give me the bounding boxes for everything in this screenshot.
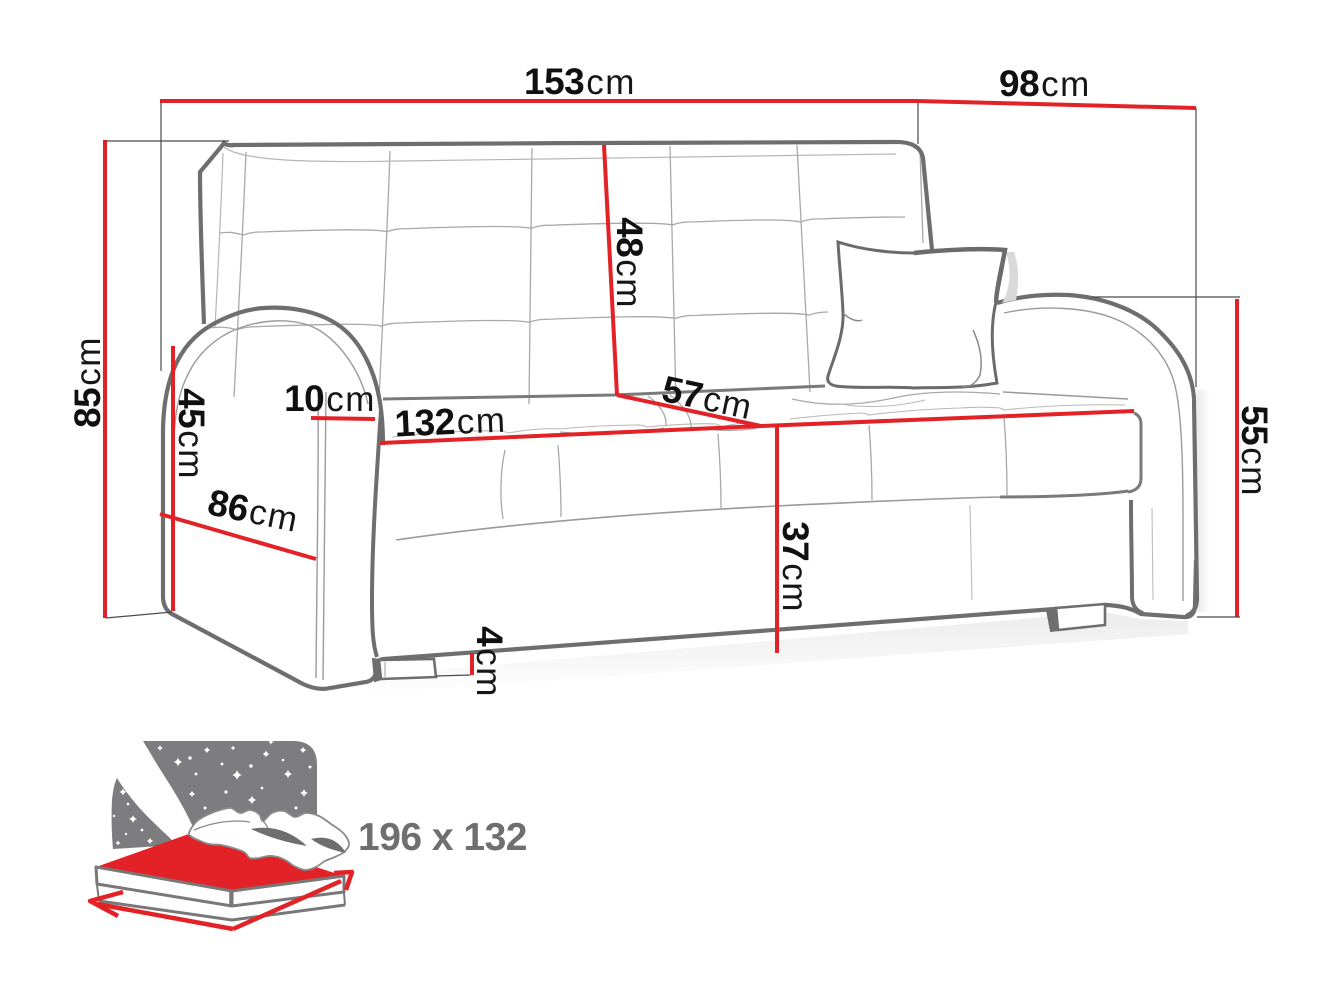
svg-text:98cm: 98cm: [999, 63, 1091, 104]
svg-text:37cm: 37cm: [775, 521, 816, 613]
svg-text:196 x 132: 196 x 132: [358, 816, 527, 859]
svg-text:132cm: 132cm: [394, 399, 508, 445]
svg-text:55cm: 55cm: [1234, 405, 1275, 497]
svg-text:153cm: 153cm: [524, 61, 636, 102]
svg-text:10cm: 10cm: [284, 378, 376, 419]
svg-text:45cm: 45cm: [171, 388, 212, 480]
svg-text:85cm: 85cm: [67, 336, 108, 428]
svg-text:4cm: 4cm: [469, 626, 510, 698]
svg-text:48cm: 48cm: [609, 217, 650, 309]
